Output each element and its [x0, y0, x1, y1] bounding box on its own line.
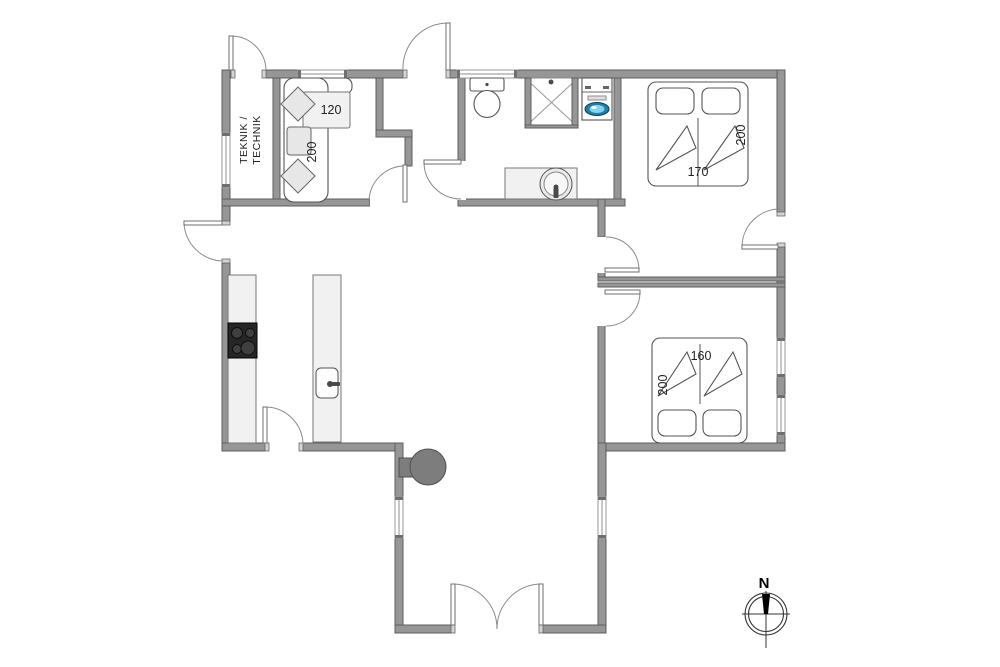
door-bathroom [424, 160, 461, 199]
door-jamb [222, 221, 230, 225]
door-livingroom-west-exterior [184, 221, 222, 261]
compass-rose [742, 591, 790, 648]
wall-segment [376, 130, 412, 137]
wall-segment [614, 78, 621, 199]
door-opening [221, 221, 231, 263]
shower-head [549, 80, 554, 85]
wall-segment [598, 325, 605, 443]
window-bedroom2-east-lower [777, 395, 785, 435]
wall-segment [777, 70, 785, 451]
sofa-bed-width-label: 120 [321, 103, 342, 117]
wall-segment [273, 78, 280, 206]
door-jamb [777, 212, 785, 216]
bed2-width-label: 160 [691, 349, 712, 363]
sofa-bed-length-label: 200 [305, 142, 319, 163]
wall-segment [458, 78, 465, 162]
window-bedroom2-east-upper [777, 338, 785, 377]
teknik-room-label: TECHNIK [251, 115, 263, 165]
wall-segment [598, 443, 785, 451]
window-lobby-west [395, 497, 403, 538]
door-opening [776, 212, 786, 247]
door-kitchen-exterior [263, 407, 303, 444]
door-sofa-room [369, 165, 407, 202]
window-sofa-room-north [298, 70, 347, 78]
door-teknik-exterior [229, 36, 266, 70]
door-jamb [446, 70, 450, 78]
bathroom-sink [505, 168, 577, 200]
pillow [702, 88, 740, 114]
bed1-length-label: 200 [734, 125, 748, 146]
window-lobby-east [598, 497, 606, 538]
door-bedroom1-exterior [742, 209, 780, 249]
wall-segment [598, 277, 785, 281]
door-jamb [451, 625, 455, 633]
door-opening [370, 198, 407, 207]
door-jamb [265, 443, 269, 451]
entrance-double-door [451, 584, 543, 629]
wood-stove [399, 449, 446, 485]
kitchen-counter [228, 275, 257, 443]
wall-segment [376, 78, 383, 135]
shower [525, 78, 578, 128]
wall-segment [405, 137, 412, 166]
teknik-room-label: TEKNIK / [238, 116, 250, 164]
door-jamb [231, 70, 235, 78]
door-bedroom1 [605, 237, 639, 272]
door-opening [265, 442, 303, 452]
pillow [703, 410, 741, 436]
floor-plan: TEKNIK / TECHNIK 120 200 170 200 160 200… [0, 0, 1000, 667]
door-jamb [262, 70, 266, 78]
bed2-length-label: 200 [656, 375, 670, 396]
compass-north-label: N [759, 575, 770, 592]
sofa-bed-group [281, 78, 352, 202]
wall-segment [598, 283, 785, 287]
door-opening [403, 69, 450, 79]
wall-segment [222, 443, 403, 451]
bed1-width-label: 170 [688, 165, 709, 179]
door-bedroom2 [605, 290, 640, 326]
washing-machine [582, 78, 612, 120]
toilet [470, 78, 504, 118]
north-needle [762, 594, 770, 614]
door-jamb [403, 70, 407, 78]
floor-plan-drawing: TEKNIK / TECHNIK 120 200 170 200 160 200… [0, 0, 1000, 667]
door-opening [597, 289, 606, 326]
window-bathroom-north [457, 70, 517, 78]
pillow [658, 410, 696, 436]
door-opening [457, 161, 466, 200]
door-jamb [222, 259, 230, 263]
door-corridor-exterior [403, 23, 450, 70]
door-jamb [539, 625, 543, 633]
door-opening [231, 69, 266, 79]
wall-segment [598, 199, 605, 237]
door-jamb [299, 443, 303, 451]
kitchen-island [313, 275, 341, 442]
pillow [656, 88, 694, 114]
window-teknik-west [222, 133, 230, 187]
